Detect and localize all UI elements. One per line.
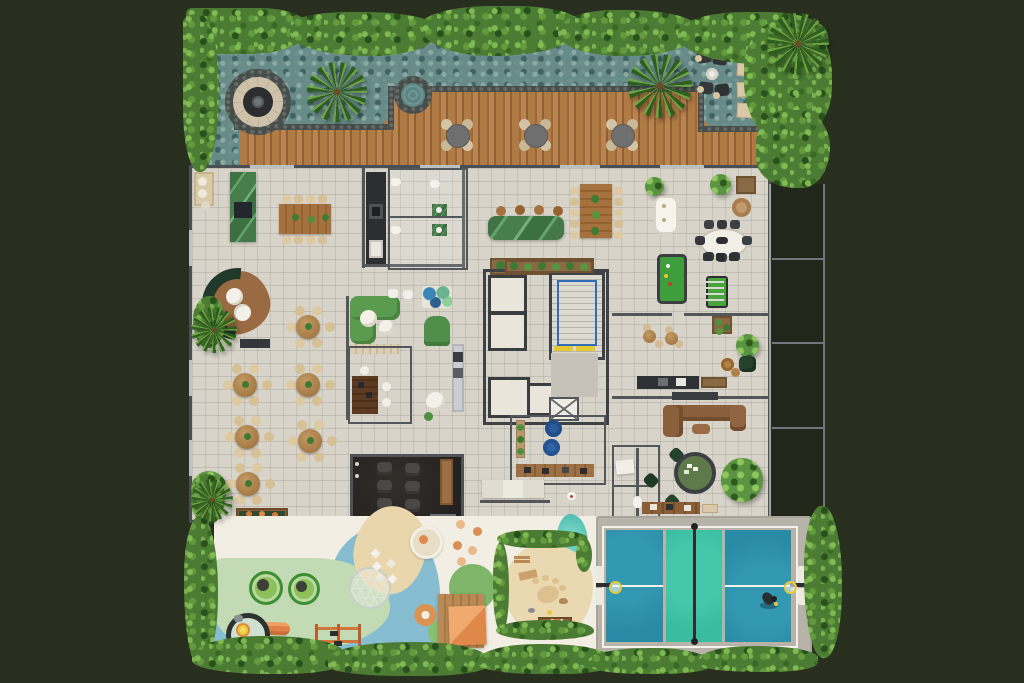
desk-items (358, 382, 364, 388)
bean-bag (545, 420, 562, 437)
tv-console (240, 339, 270, 348)
basketball-backboard (595, 566, 604, 583)
console-table (736, 176, 756, 194)
palm-tree (628, 54, 692, 118)
hedge-right-mass (756, 110, 830, 188)
media-console (672, 392, 718, 400)
bar-island (488, 216, 564, 240)
plant-shelf-unit (712, 316, 732, 334)
vanity-basin (436, 207, 442, 213)
table-plant (242, 381, 249, 388)
window (189, 360, 192, 396)
oval-table-centerpiece (716, 237, 728, 244)
window (250, 165, 294, 168)
table-plant (244, 433, 251, 440)
agility-hurdle (514, 560, 530, 563)
pet-hedge (493, 542, 509, 632)
palm-tree (767, 13, 829, 75)
fire-pit-center (252, 96, 264, 108)
core-planter (505, 260, 593, 273)
court-net (693, 526, 696, 644)
trampoline-mat (257, 579, 269, 591)
green-booth (424, 316, 450, 346)
balcony-rail (823, 184, 825, 516)
deck-table-top (611, 124, 635, 148)
bean-bag (543, 439, 560, 456)
bar-stools-dark (703, 253, 712, 261)
toilet (633, 496, 642, 508)
table-plant (245, 480, 252, 487)
player-paddle (774, 602, 778, 606)
restroom-divider (390, 216, 462, 218)
net-post (691, 523, 698, 530)
planter-greens (510, 262, 518, 270)
dark-chairs (704, 220, 714, 229)
shelf-plants (715, 319, 722, 326)
cinema-recliner (405, 463, 420, 476)
kitchenette-counter (637, 376, 699, 389)
small-plant (424, 412, 433, 421)
wood-crate-shelf (701, 377, 727, 388)
meeting-table (352, 376, 378, 414)
table-chairs (570, 187, 579, 195)
chair-ring (286, 380, 296, 390)
shelf-plates (198, 177, 207, 186)
games-table-dots (662, 204, 666, 208)
table-plants (591, 195, 599, 203)
balcony-strip (772, 184, 825, 516)
elevator (488, 312, 527, 351)
playing-cards (687, 464, 692, 468)
snack-shelf (440, 459, 453, 505)
table-chairs (282, 195, 291, 203)
foosball-rods (706, 281, 724, 283)
speaker-dots (355, 462, 359, 466)
orange-dots (456, 520, 465, 529)
microwave (676, 378, 686, 386)
potted-plant (645, 177, 664, 196)
geodesic-dome (349, 567, 391, 609)
credenza-items (650, 504, 657, 510)
cinema-recliner (377, 462, 392, 475)
pet-hedge (497, 530, 587, 548)
floor-plan-render (0, 0, 1024, 683)
balcony-divider (772, 342, 825, 344)
lounger-pillow (695, 55, 702, 62)
stove (369, 204, 383, 219)
communal-table (279, 204, 331, 234)
window (189, 230, 192, 266)
chair-ring (223, 380, 233, 390)
toilet (430, 180, 440, 188)
table-chairs (614, 187, 623, 195)
deck-edging (698, 126, 760, 132)
chair-ring (288, 436, 298, 446)
building-right-wall (769, 184, 771, 516)
dispenser-dot (570, 495, 573, 498)
wall (480, 500, 550, 503)
chair-ring (225, 432, 235, 442)
lounger-table (706, 68, 718, 80)
hedge-bottom (698, 646, 818, 672)
toilet (391, 226, 401, 234)
hedge-bottom (192, 636, 344, 674)
cinema-recliner (405, 481, 420, 494)
shelf-greens (517, 424, 524, 431)
carousel-paddle (234, 615, 243, 622)
cafe-table-top (643, 330, 656, 343)
lounger-pillow (697, 86, 704, 93)
table-chairs (282, 236, 291, 244)
potted-plant (710, 174, 731, 195)
desk-equipment (524, 467, 531, 473)
wall (612, 313, 672, 316)
card-table (674, 452, 716, 494)
brown-sectional-sofa (663, 405, 683, 437)
table-plant (305, 381, 312, 388)
cinema-recliner (377, 480, 392, 493)
window (660, 165, 704, 168)
climbing-pads (330, 631, 338, 636)
playhouse-roof (448, 605, 486, 645)
court-center-line (725, 585, 791, 587)
table-plant (307, 437, 314, 444)
deck-table-top (524, 124, 548, 148)
white-pouf (379, 320, 394, 335)
hedge-right-bottom (804, 506, 842, 658)
meeting-chairs (382, 382, 391, 391)
kitchen-sink (369, 240, 383, 258)
hedge-bottom (328, 642, 490, 676)
pool-table (657, 254, 687, 304)
small-desk (615, 459, 634, 475)
stair-safety-strip (554, 346, 573, 351)
wall (362, 168, 365, 268)
toilet (391, 178, 401, 186)
hedge-left (183, 14, 219, 172)
palm-tree (191, 479, 233, 521)
sofa-chaise (730, 405, 746, 431)
dome-struts (351, 569, 389, 607)
lounge-chair (234, 304, 251, 321)
deck-table-top (446, 124, 470, 148)
window (189, 440, 192, 476)
lounger-pillow (713, 92, 720, 99)
palm-tree (191, 307, 237, 353)
large-indoor-tree (721, 458, 763, 502)
cafe-table-top (665, 332, 678, 345)
basketball-rim (609, 581, 622, 594)
table-plant (305, 323, 312, 330)
window (560, 165, 600, 168)
climbing-frame-bar (315, 627, 361, 630)
palm-tree (307, 62, 367, 122)
basketball-rim (784, 581, 797, 594)
white-pouf (360, 310, 377, 327)
storage-boxes (702, 504, 718, 513)
yellow-flower (547, 610, 552, 615)
green-armchair (739, 356, 756, 372)
appliance (453, 352, 463, 362)
dog-figure (528, 608, 535, 613)
long-dining-table (580, 184, 612, 238)
lounge-chair (226, 288, 243, 305)
wicker-coffee-table (731, 368, 740, 377)
pet-hedge (496, 620, 594, 640)
elevator (488, 377, 530, 418)
white-chairs (388, 289, 398, 298)
table-plants (292, 214, 299, 221)
pet-hedge (576, 538, 592, 572)
white-cabinet-bench (482, 480, 544, 498)
elevator (488, 275, 527, 314)
hedge-bottom (588, 648, 710, 674)
tv-screen (234, 202, 252, 218)
room-divider (614, 485, 654, 487)
spa-water (401, 83, 425, 107)
balcony-divider (772, 258, 825, 260)
dog-figure (559, 598, 568, 604)
ottoman (692, 424, 710, 434)
bar-stools (496, 206, 506, 216)
abstract-rug (422, 286, 452, 308)
wicker-chair (732, 198, 751, 217)
balcony-divider (772, 427, 825, 429)
paw-print-toes (532, 578, 539, 584)
corner-plant (736, 334, 759, 357)
stair-railing (557, 280, 597, 346)
chair-ring (286, 322, 296, 332)
restroom-vanity (432, 224, 447, 236)
carousel-center (236, 623, 250, 637)
pool-balls (666, 264, 670, 268)
stair-landing (551, 353, 598, 397)
games-table-white (654, 196, 678, 234)
sand-carousel-center (419, 535, 428, 544)
trampoline-mat (296, 581, 307, 592)
white-armchair (426, 392, 445, 411)
